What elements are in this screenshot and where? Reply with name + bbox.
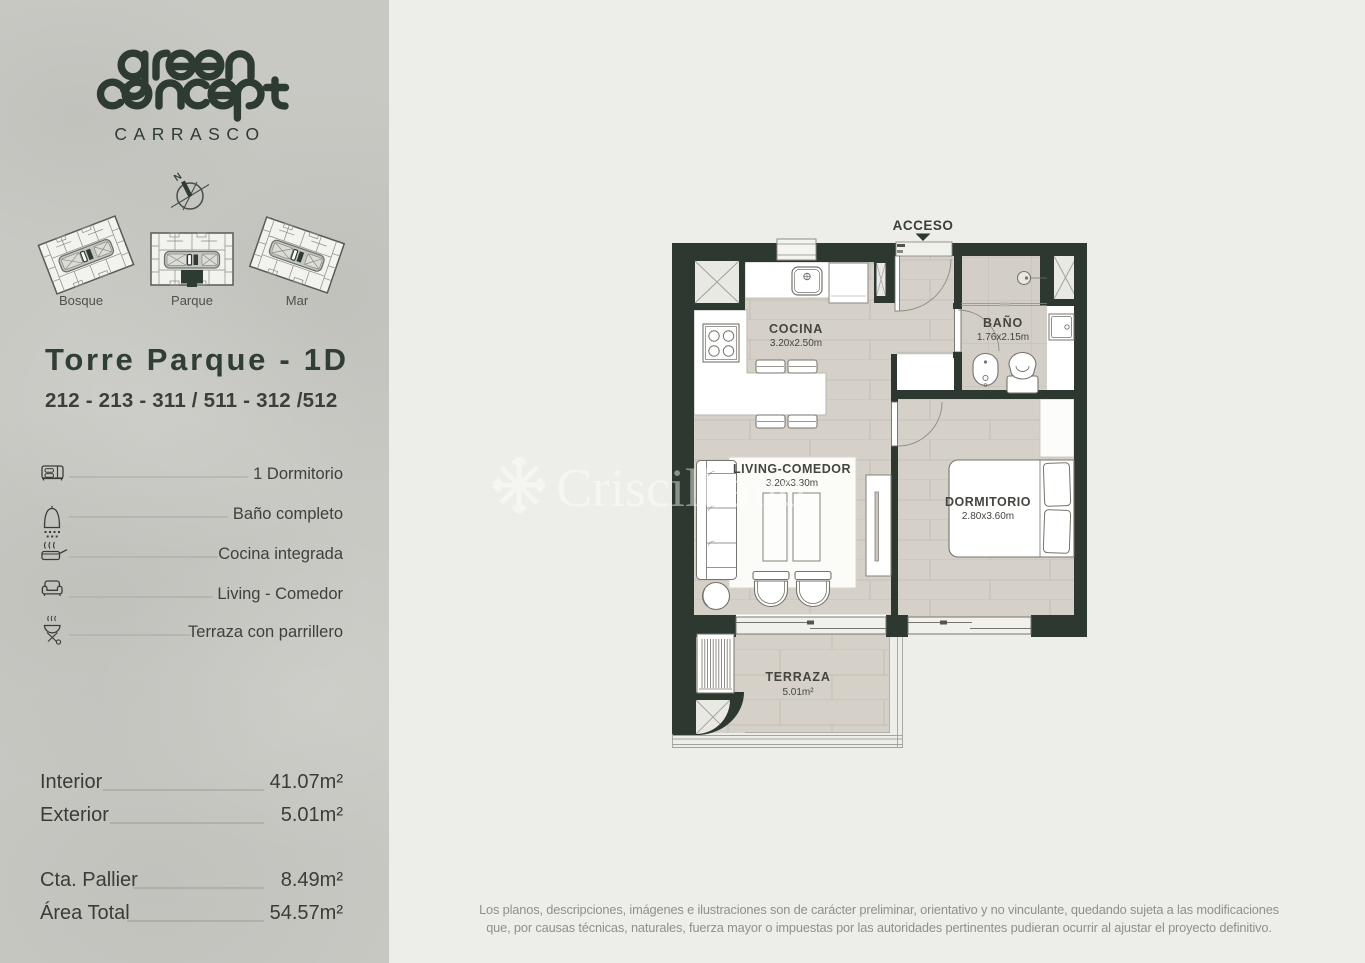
svg-text:Criscilbano: Criscilbano — [556, 458, 805, 518]
